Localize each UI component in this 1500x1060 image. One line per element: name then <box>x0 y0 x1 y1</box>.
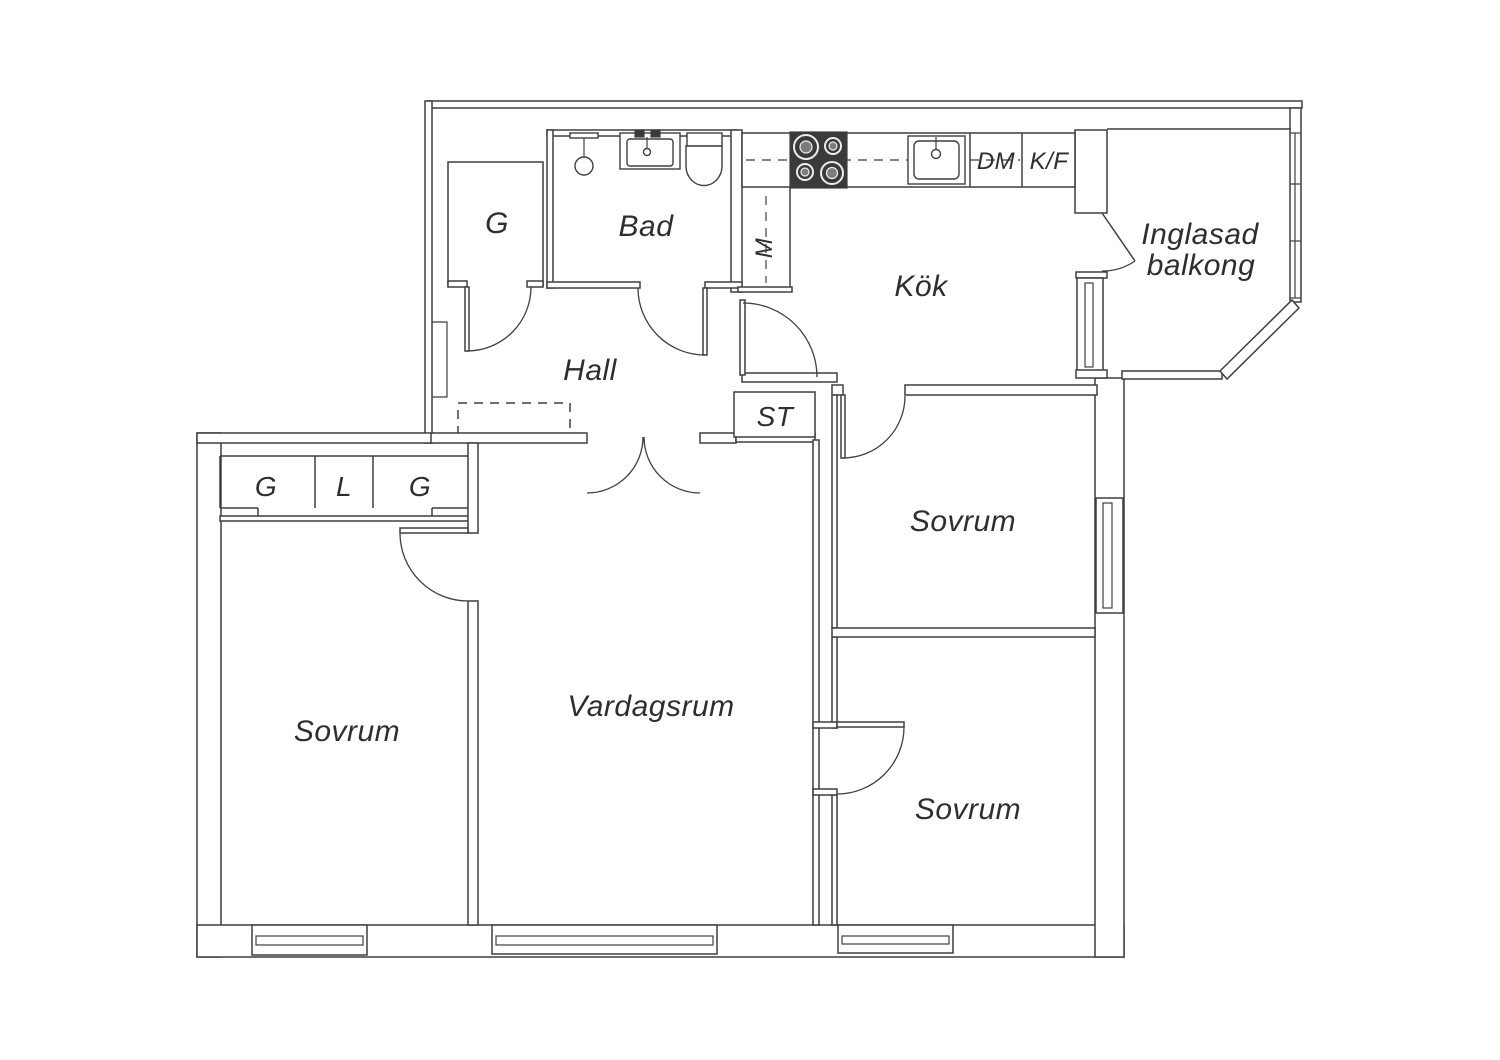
burner <box>829 142 837 150</box>
double-door-arc <box>644 437 700 493</box>
basin-tap <box>651 130 660 137</box>
window-glazing <box>842 936 949 944</box>
room-label-vardagsrum: Vardagsrum <box>567 690 734 723</box>
toilet-icon <box>686 133 722 186</box>
shower-bar <box>570 133 598 138</box>
wall <box>425 101 432 443</box>
appliance-label-m: M <box>751 238 778 259</box>
wall <box>832 637 837 728</box>
wall <box>431 433 587 443</box>
washbasin-icon <box>620 130 680 169</box>
door-leaf <box>465 287 469 351</box>
door-leaf <box>837 722 904 727</box>
wall <box>197 433 221 957</box>
door-arc <box>837 727 904 794</box>
wardrobe-dashed <box>458 403 570 435</box>
door-leaf <box>703 288 707 355</box>
wall <box>731 130 742 292</box>
floorplan-page: Hall Bad Kök Vardagsrum Sovrum Sovrum So… <box>0 0 1500 1060</box>
burner <box>801 168 809 176</box>
room-label-balcony-line2: balkong <box>1147 249 1256 282</box>
wall <box>832 395 837 628</box>
burner <box>800 141 812 153</box>
room-label-kok: Kök <box>894 270 949 303</box>
closet-label-g-hall: G <box>485 207 509 240</box>
hall-closet <box>448 162 543 351</box>
interior-walls-right <box>813 385 1097 925</box>
door-arc <box>1102 261 1135 271</box>
toilet-tank <box>687 133 722 146</box>
wall <box>1076 370 1107 378</box>
door-jamb <box>1076 272 1107 278</box>
door-jamb <box>813 722 837 728</box>
cabinet-bottom <box>738 287 792 292</box>
door-arc <box>467 287 531 351</box>
wall-niche <box>432 322 447 397</box>
door-arc <box>638 288 705 355</box>
wall <box>1075 130 1107 213</box>
room-label-hall: Hall <box>563 354 618 387</box>
appliance-label-dm: DM <box>977 148 1015 175</box>
door-arc <box>400 533 468 601</box>
sink-drain <box>932 150 941 159</box>
room-label-balcony-line1: Inglasad <box>1141 218 1259 251</box>
door-leaf <box>400 528 468 533</box>
door-leaf <box>841 395 845 458</box>
wall <box>547 282 640 288</box>
window-glazing <box>496 936 713 945</box>
window-glazing <box>256 936 363 945</box>
door-jamb <box>527 281 543 287</box>
door-arc <box>843 396 905 458</box>
exterior-walls <box>197 101 1302 957</box>
wall <box>813 440 819 925</box>
kitchen-sink-icon <box>908 136 965 184</box>
door-jamb <box>813 789 837 795</box>
wall <box>705 282 742 288</box>
floorplan-drawing: Hall Bad Kök Vardagsrum Sovrum Sovrum So… <box>0 0 1500 1060</box>
door-leaf <box>1102 213 1135 261</box>
burner <box>827 168 838 179</box>
wall <box>547 130 553 288</box>
wall <box>832 795 837 925</box>
balcony-corner-window <box>1220 300 1299 379</box>
door-arc <box>743 303 817 377</box>
closet-row <box>220 443 478 925</box>
wall <box>832 385 843 395</box>
hall-structure <box>197 300 837 493</box>
shower-icon <box>570 133 598 175</box>
wall <box>468 443 478 533</box>
double-door-arc <box>587 437 643 493</box>
basin-drain <box>644 149 651 156</box>
room-label-sovrum-bottom-right: Sovrum <box>915 793 1021 826</box>
kitchen-structure <box>738 132 1075 292</box>
room-label-sovrum-left: Sovrum <box>294 715 400 748</box>
wall <box>1122 371 1222 379</box>
room-label-sovrum-top-right: Sovrum <box>910 505 1016 538</box>
room-label-bad: Bad <box>619 210 675 243</box>
door-leaf <box>740 300 745 375</box>
toilet-bowl <box>686 146 722 186</box>
wall <box>832 628 1095 637</box>
shower-head <box>575 157 593 175</box>
wall <box>197 433 432 443</box>
wall <box>1095 378 1124 957</box>
closet-label-g1: G <box>255 471 277 502</box>
wall <box>700 433 736 443</box>
door-threshold <box>742 373 837 382</box>
closet-label-l: L <box>336 471 352 502</box>
wall <box>468 601 478 925</box>
closet-label-g2: G <box>409 471 431 502</box>
window-glazing <box>1085 283 1093 367</box>
appliance-label-kf: K/F <box>1030 148 1070 175</box>
door-jamb <box>448 281 467 287</box>
wall <box>905 385 1097 395</box>
basin-tap <box>635 130 644 137</box>
closet-label-st: ST <box>757 401 795 432</box>
wall <box>220 516 470 521</box>
window-glazing <box>1103 503 1112 608</box>
wall <box>428 101 1302 108</box>
